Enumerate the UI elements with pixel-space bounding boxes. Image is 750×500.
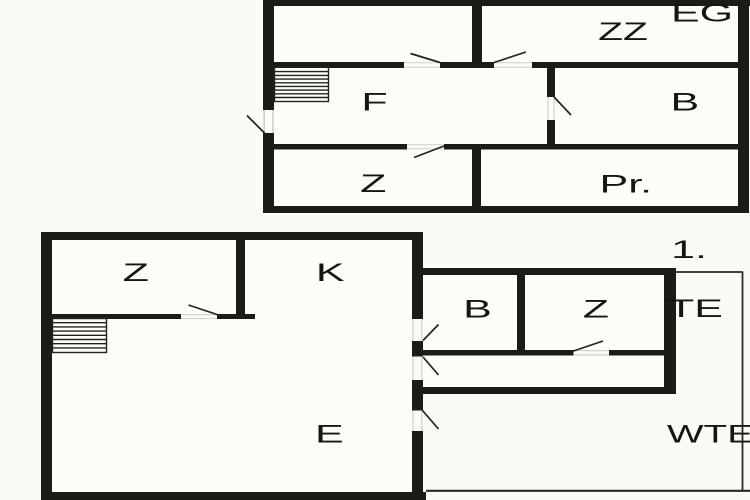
- svg-text:Z: Z: [123, 259, 149, 287]
- svg-text:K: K: [316, 259, 345, 287]
- svg-text:B: B: [463, 295, 492, 323]
- svg-text:WTE: WTE: [667, 420, 750, 448]
- svg-text:Z: Z: [360, 170, 386, 198]
- svg-text:EG: EG: [671, 0, 733, 27]
- svg-text:E: E: [315, 420, 344, 448]
- svg-text:TE: TE: [668, 295, 723, 323]
- svg-text:Z: Z: [583, 295, 609, 323]
- svg-text:1.: 1.: [671, 236, 707, 264]
- svg-text:B: B: [670, 88, 699, 116]
- svg-text:F: F: [361, 88, 387, 116]
- svg-text:Pr.: Pr.: [600, 170, 653, 198]
- svg-text:ZZ: ZZ: [598, 18, 648, 46]
